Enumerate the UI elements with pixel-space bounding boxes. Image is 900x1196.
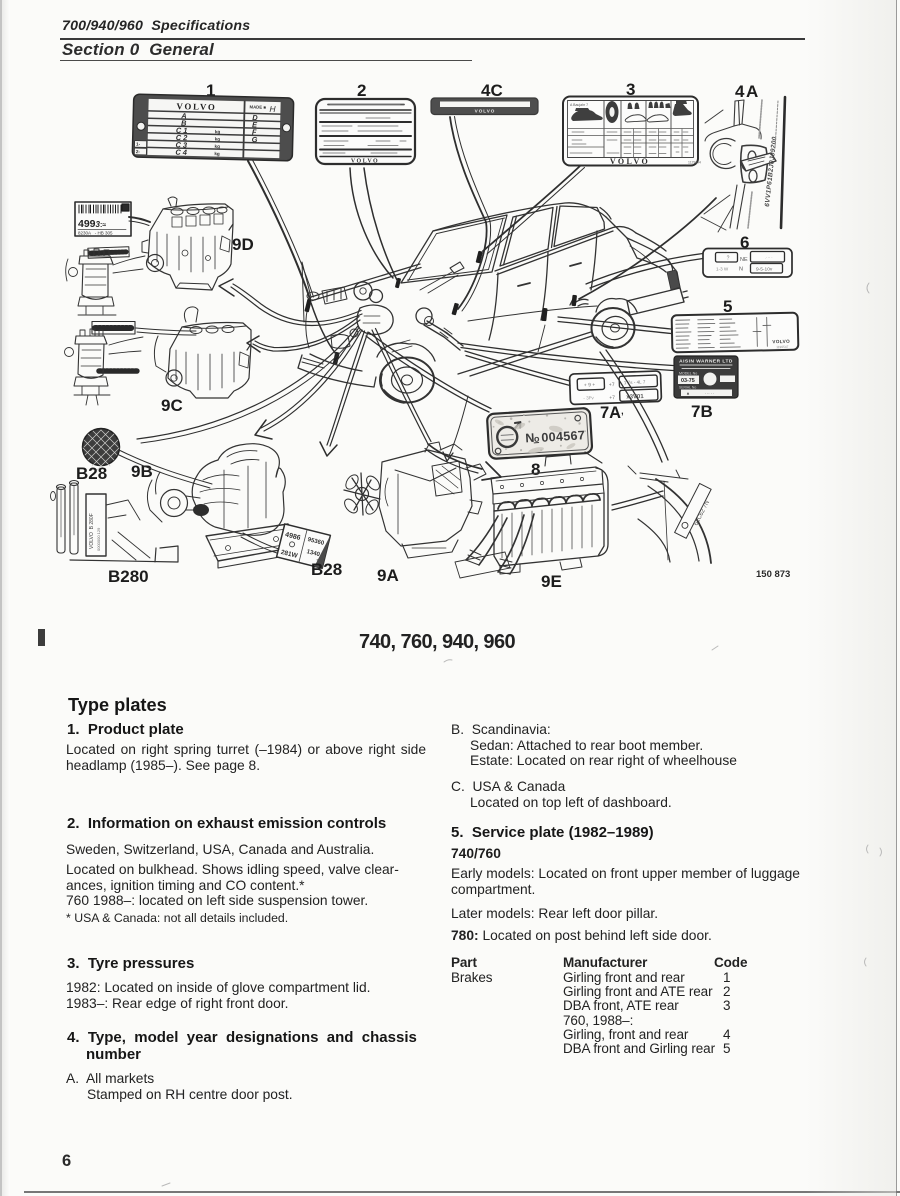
svg-text:1129344: 1129344 xyxy=(688,161,701,165)
svg-text:9-5-10v: 9-5-10v xyxy=(756,267,773,273)
svg-text:9E: 9E xyxy=(541,572,562,591)
svg-text:VOLVO: VOLVO xyxy=(610,157,650,166)
svg-text:A Baujahr 7: A Baujahr 7 xyxy=(570,103,588,107)
svg-text:+ 9 +: + 9 + xyxy=(584,382,596,388)
svg-text:G: G xyxy=(252,135,258,144)
svg-text:VOLVO: VOLVO xyxy=(772,339,790,344)
svg-text:kg: kg xyxy=(215,129,221,134)
svg-text:?: ? xyxy=(727,256,730,262)
svg-text:· ·· · ·: · ·· · · xyxy=(705,392,714,396)
svg-text:kg: kg xyxy=(215,137,221,142)
svg-text:SERIAL No: SERIAL No xyxy=(679,386,696,390)
svg-text:MADE ■: MADE ■ xyxy=(249,104,266,109)
svg-text:1-: 1- xyxy=(136,142,141,147)
svg-text:MODEL No: MODEL No xyxy=(679,372,697,376)
svg-text:▲: ▲ xyxy=(686,391,690,396)
svg-text:2: 2 xyxy=(357,81,366,100)
svg-text:- 3Fv: - 3Fv xyxy=(583,395,594,400)
svg-text:B280: B280 xyxy=(108,567,149,586)
svg-text:004567: 004567 xyxy=(541,428,586,445)
svg-text:+7: +7 xyxy=(609,382,615,388)
svg-text:+7: +7 xyxy=(609,395,615,401)
svg-text:kg: kg xyxy=(214,151,220,156)
svg-text:H: H xyxy=(269,104,276,114)
svg-text:03-75: 03-75 xyxy=(681,378,695,384)
svg-text:B28: B28 xyxy=(311,560,342,579)
svg-text:0000000 129: 0000000 129 xyxy=(96,527,101,551)
svg-text:9C: 9C xyxy=(161,396,183,415)
svg-text:1190547: 1190547 xyxy=(776,345,788,349)
svg-text:150 873: 150 873 xyxy=(756,569,790,580)
svg-text:9A: 9A xyxy=(377,566,399,585)
svg-text:2-: 2- xyxy=(136,149,141,154)
svg-text:1-3 W: 1-3 W xyxy=(716,267,729,272)
svg-text:4C: 4C xyxy=(481,81,503,100)
svg-text:C 4: C 4 xyxy=(175,148,187,157)
svg-text:NE: NE xyxy=(740,257,748,263)
svg-text:VOLVO: VOLVO xyxy=(351,159,379,165)
svg-text:7B: 7B xyxy=(691,402,713,421)
svg-text:AISIN WARNER LTD: AISIN WARNER LTD xyxy=(679,359,733,365)
svg-text:B28: B28 xyxy=(76,464,107,483)
svg-text:8230A - HB 305: 8230A - HB 305 xyxy=(78,231,113,236)
svg-text:7A,: 7A, xyxy=(600,404,624,422)
svg-text:4A: 4A xyxy=(735,82,760,101)
svg-text:9D: 9D xyxy=(232,235,254,254)
svg-text:VOLVO: VOLVO xyxy=(475,109,496,114)
svg-text:.··· ·: .··· · xyxy=(765,255,773,260)
svg-text:kg: kg xyxy=(214,144,220,149)
svg-text:VOLVO B 280F: VOLVO B 280F xyxy=(89,513,95,549)
svg-text:N: N xyxy=(739,267,743,273)
svg-text:8: 8 xyxy=(531,460,540,479)
